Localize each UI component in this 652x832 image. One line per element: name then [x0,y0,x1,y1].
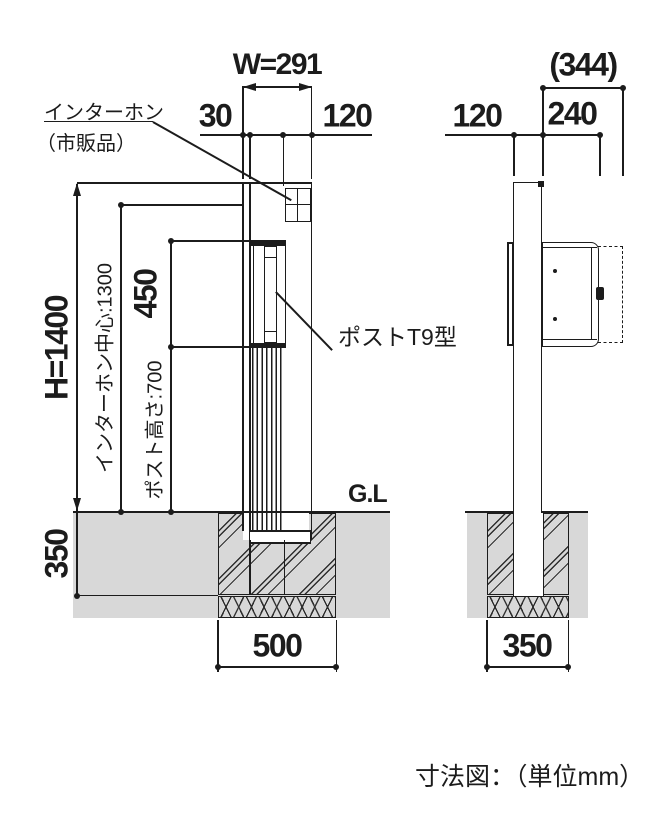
dim-dot [168,509,174,515]
anchor-plate [249,530,311,544]
mailbox-screw-top [553,269,557,273]
dim-dot [309,132,315,138]
dimension-diagram: W=291 30 120 (344) 120 240 H=1400 インターホン… [0,0,652,832]
ext-line-intercom-left [283,134,284,186]
postbox-right-edge [285,240,287,348]
ext-line-side-post-left [513,134,514,176]
mailbox-top-inner-line [543,247,597,248]
dim-700-label: ポスト高さ:700 [139,361,168,500]
ext-line-side-box [599,134,600,176]
dim-240-label: 240 [548,96,597,133]
dim-dot [247,132,253,138]
dim-dot [74,593,80,599]
dim-line-350-depth [76,513,78,596]
ref-line-top [77,182,243,184]
dim-450-label: 450 [128,270,165,319]
intercom-note-label: （市販品） [36,127,136,156]
dim-350-footing-label: 350 [503,628,552,665]
mailbox-screw-bottom [553,317,557,321]
mailbox-open-door-dashed [598,246,623,343]
footing-bottom-ref-line [77,595,218,597]
dim-width-arrow-left [243,83,256,91]
intercom-label-underline [44,121,153,123]
postbox-inner-line-2 [264,246,265,343]
footing-gravel-front [218,596,336,618]
dim-dot [215,664,221,670]
intercom-grid-horizontal-line [286,204,310,205]
post-model-label: ポストT9型 [338,318,457,352]
dim-dot [565,664,571,670]
side-rear-rail [507,242,514,346]
dim-line-344 [543,87,623,89]
dim-line-500 [218,666,336,668]
dim-500-label: 500 [253,628,302,665]
dim-line-350-footing [487,666,568,668]
dim-1300-label: インターホン中心:1300 [89,263,118,473]
front-post-right-edge [311,182,313,540]
side-post-underground [513,513,544,596]
postbox-latch-top [264,246,277,258]
footing-gravel-side [487,596,569,618]
dim-120-side-label: 120 [453,98,502,135]
dim-350-depth-label: 350 [39,530,76,579]
dim-dot [118,509,124,515]
dim-dot [168,238,174,244]
dim-dot [240,132,246,138]
mailbox-door-edge-line [591,247,592,340]
dim-line-1300 [120,205,122,513]
front-strip-outer-edge [242,182,244,531]
dim-line-h1400 [76,184,78,512]
louver-slats-underground [252,513,286,530]
ground-level-label: G.L [348,480,387,509]
dim-dot [333,664,339,670]
postbox-inner-line-1 [253,246,254,343]
anchor-leg-left [249,540,251,595]
front-post-top-edge [242,182,312,184]
ref-line-postbox-top [171,240,250,242]
dim-dot [168,344,174,350]
ref-line-intercom-center [121,204,242,206]
intercom-unit-front [285,188,311,222]
dim-h1400-arrow-top [73,183,81,196]
mailbox-side [542,242,599,347]
dim-line-450-700 [170,241,172,513]
ext-line-strip-inner [249,134,250,179]
dim-h1400-label: H=1400 [39,296,76,400]
postbox-latch-bottom [264,331,277,343]
dim-344-label: (344) [549,47,616,84]
ref-line-postbox-bottom [171,346,250,348]
dim-120-front-label: 120 [323,98,372,135]
dim-dot [118,202,124,208]
figure-caption: 寸法図：（単位mm） [415,757,644,793]
ext-line-side-post-right [542,87,543,176]
side-post [513,182,542,513]
dim-dot [280,132,286,138]
intercom-grid-vertical-line [297,189,298,221]
mailbox-bottom-inner-line [543,339,597,340]
dim-width-label: W=291 [233,48,321,82]
dim-h1400-arrow-bottom [73,498,81,511]
dim-30-label: 30 [199,98,232,135]
anchor-leg-right [284,540,286,595]
louver-slats-front [252,348,286,513]
side-post-cap-tick [538,181,544,187]
dim-dot [484,664,490,670]
ext-line-side-overall [622,87,623,176]
